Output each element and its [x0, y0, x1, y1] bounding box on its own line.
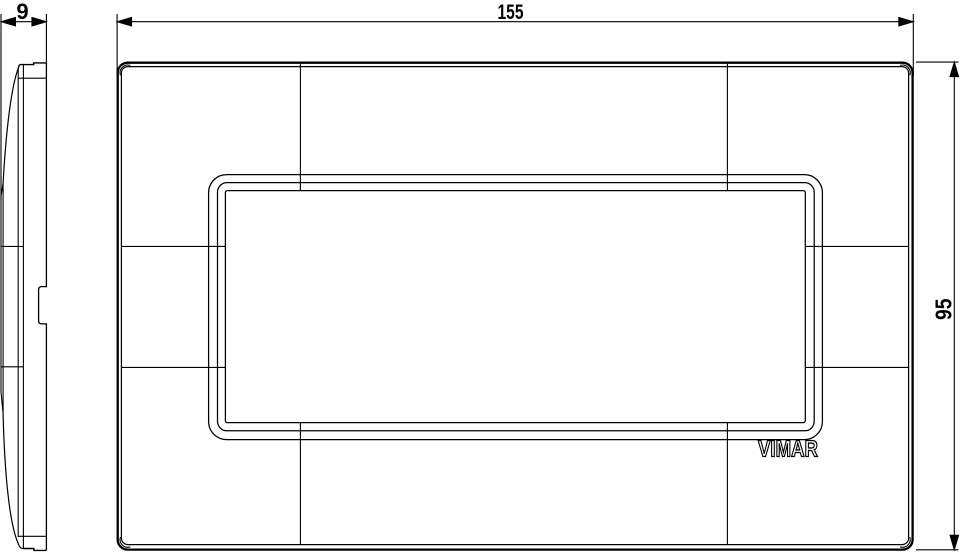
svg-text:VIMAR: VIMAR [758, 435, 818, 461]
svg-text:9: 9 [16, 0, 28, 24]
svg-text:155: 155 [498, 1, 524, 24]
svg-text:95: 95 [931, 298, 957, 320]
